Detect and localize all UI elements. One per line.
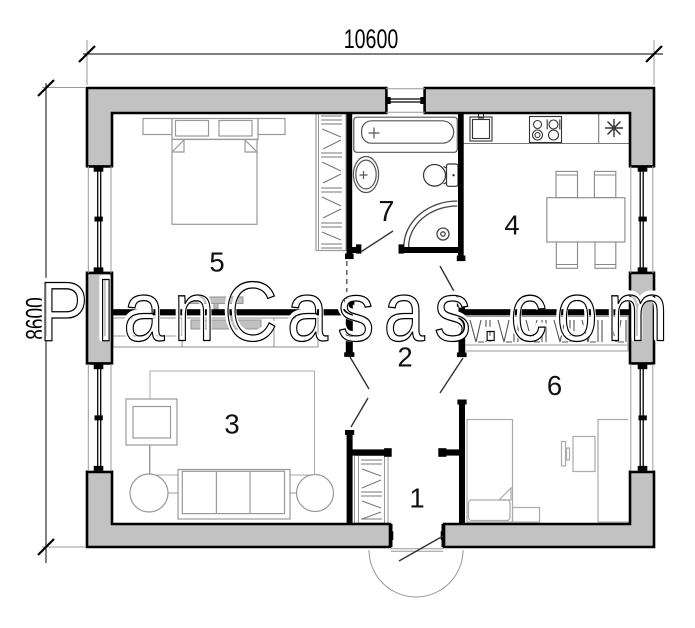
svg-text:6: 6 (547, 370, 562, 401)
svg-text:10600: 10600 (344, 24, 399, 54)
svg-text:4: 4 (504, 210, 519, 241)
svg-text:3: 3 (224, 409, 239, 440)
svg-text:1: 1 (409, 483, 424, 514)
svg-text:PlanCasas.com: PlanCasas.com (39, 264, 678, 358)
svg-text:7: 7 (378, 196, 394, 228)
